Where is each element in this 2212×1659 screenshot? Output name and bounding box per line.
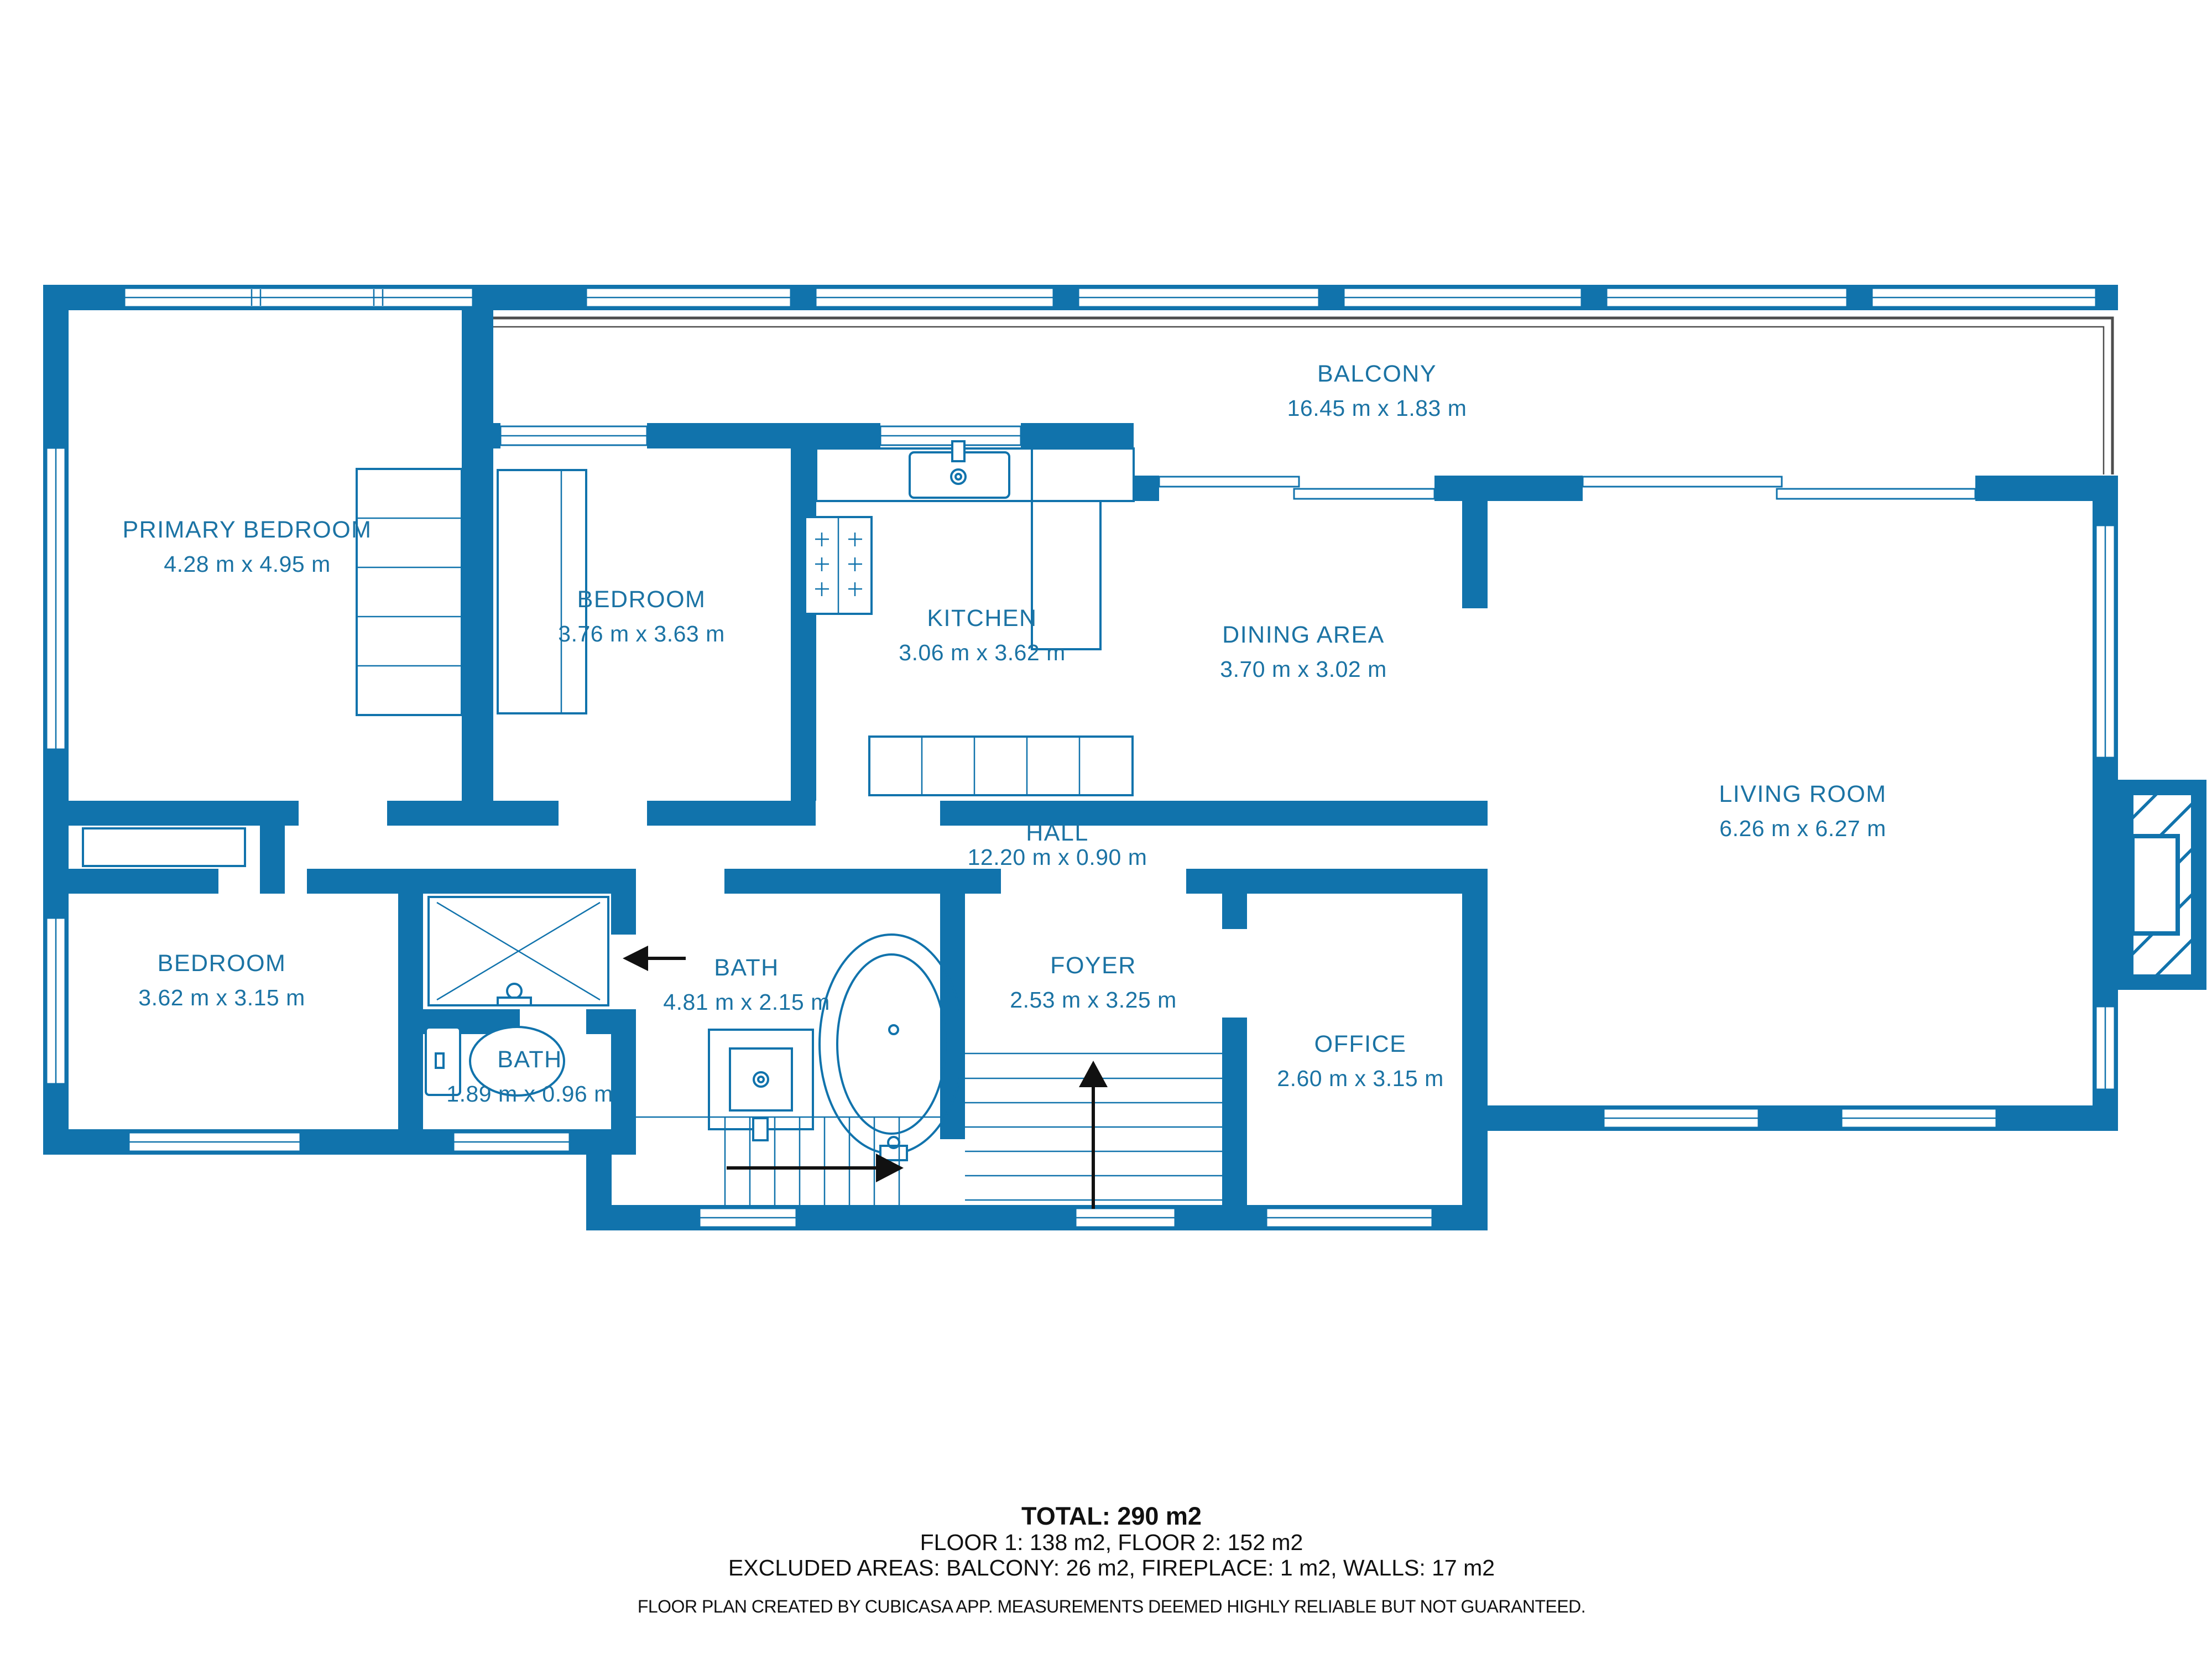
closet-shelves (357, 469, 462, 715)
summary-excluded: EXCLUDED AREAS: BALCONY: 26 m2, FIREPLAC… (728, 1555, 1495, 1580)
room-name: BALCONY (1317, 361, 1437, 387)
window (500, 426, 647, 445)
stove-icon (805, 517, 872, 614)
fireplace-icon (2118, 780, 2206, 990)
room-name: HALL (1026, 820, 1089, 846)
room-dims: 1.89 m x 0.96 m (446, 1081, 613, 1107)
window (46, 448, 65, 749)
summary: TOTAL: 290 m2 FLOOR 1: 138 m2, FLOOR 2: … (638, 1502, 1585, 1616)
room-name: OFFICE (1314, 1031, 1407, 1057)
room-label-hall: HALL 12.20 m x 0.90 m (968, 820, 1147, 870)
door-swing-arrow (623, 946, 686, 971)
window (586, 288, 791, 307)
floor-plan-page: BALCONY 16.45 m x 1.83 m PRIMARY BEDROOM… (0, 0, 2212, 1659)
room-dims: 3.76 m x 3.63 m (558, 621, 724, 646)
room-label-foyer: FOYER 2.53 m x 3.25 m (1010, 952, 1176, 1013)
room-dims: 4.81 m x 2.15 m (663, 989, 830, 1015)
room-dims: 12.20 m x 0.90 m (968, 844, 1147, 870)
window (1606, 288, 1847, 307)
room-label-kitchen: KITCHEN 3.06 m x 3.62 m (899, 605, 1065, 665)
stairs-upper-flight (965, 1053, 1222, 1209)
window (1076, 1208, 1175, 1227)
window (46, 918, 65, 1084)
room-dims: 3.62 m x 3.15 m (138, 985, 305, 1010)
window (816, 288, 1053, 307)
room-dims: 4.28 m x 4.95 m (164, 551, 330, 577)
window (1266, 1208, 1432, 1227)
window (453, 1133, 570, 1151)
wardrobe (498, 470, 586, 713)
room-label-balcony: BALCONY 16.45 m x 1.83 m (1287, 361, 1467, 421)
room-dims: 3.70 m x 3.02 m (1220, 656, 1386, 682)
room-label-bedroom-lower: BEDROOM 3.62 m x 3.15 m (138, 950, 305, 1010)
window (2096, 525, 2115, 758)
window (1841, 1109, 1996, 1128)
summary-total: TOTAL: 290 m2 (1021, 1502, 1202, 1530)
wall-foyer-office (1222, 1018, 1247, 1230)
summary-disclaimer: FLOOR PLAN CREATED BY CUBICASA APP. MEAS… (638, 1597, 1585, 1616)
sliding-door (1583, 477, 1975, 499)
room-label-office: OFFICE 2.60 m x 3.15 m (1277, 1031, 1443, 1091)
floor-plan: BALCONY 16.45 m x 1.83 m PRIMARY BEDROOM… (0, 0, 2212, 1659)
room-name: PRIMARY BEDROOM (123, 517, 372, 543)
room-name: LIVING ROOM (1719, 781, 1886, 807)
room-name: BEDROOM (158, 950, 286, 977)
window (1344, 288, 1582, 307)
wall-bedroom-bath (398, 894, 423, 1155)
room-name: BATH (714, 954, 779, 981)
window (129, 1133, 300, 1151)
wall-living-bottom (1488, 1105, 2118, 1131)
room-label-bath-main: BATH 4.81 m x 2.15 m (663, 954, 830, 1015)
window (2096, 1006, 2115, 1089)
hall-closet (83, 828, 245, 866)
room-dims: 16.45 m x 1.83 m (1287, 395, 1467, 421)
summary-floors: FLOOR 1: 138 m2, FLOOR 2: 152 m2 (920, 1530, 1303, 1555)
cabinet-row (869, 737, 1133, 795)
window (1078, 288, 1319, 307)
room-dims: 2.60 m x 3.15 m (1277, 1066, 1443, 1091)
sliding-door (1159, 477, 1434, 499)
room-label-living-room: LIVING ROOM 6.26 m x 6.27 m (1719, 781, 1886, 841)
room-dims: 3.06 m x 3.62 m (899, 640, 1065, 665)
wall-primary-right (462, 285, 493, 801)
room-dims: 6.26 m x 6.27 m (1719, 816, 1886, 841)
window (1604, 1109, 1759, 1128)
room-dims: 2.53 m x 3.25 m (1010, 987, 1176, 1013)
window (700, 1208, 796, 1227)
room-label-primary-bedroom: PRIMARY BEDROOM 4.28 m x 4.95 m (123, 517, 372, 577)
shower-icon (429, 897, 608, 1005)
room-name: BATH (497, 1046, 562, 1073)
window (1872, 288, 2096, 307)
room-name: KITCHEN (927, 605, 1037, 632)
room-name: DINING AREA (1222, 622, 1385, 648)
room-name: FOYER (1050, 952, 1136, 979)
room-label-dining-area: DINING AREA 3.70 m x 3.02 m (1220, 622, 1386, 682)
window (124, 288, 473, 307)
room-name: BEDROOM (577, 586, 706, 613)
window (880, 426, 1021, 445)
